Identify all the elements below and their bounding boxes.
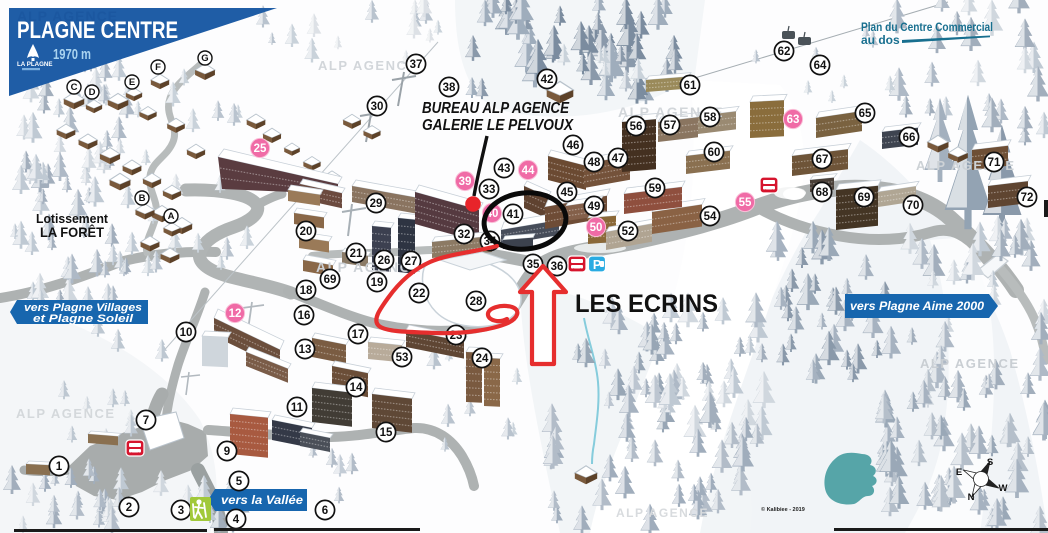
svg-text:W: W — [999, 483, 1008, 494]
svg-text:BUREAU ALP AGENCE: BUREAU ALP AGENCE — [422, 100, 570, 117]
svg-text:68: 68 — [816, 187, 829, 199]
svg-text:21: 21 — [350, 248, 363, 260]
svg-text:S: S — [987, 457, 993, 468]
svg-text:47: 47 — [612, 153, 625, 165]
svg-text:52: 52 — [622, 226, 635, 238]
svg-text:71: 71 — [988, 157, 1001, 169]
svg-text:69: 69 — [858, 192, 871, 204]
svg-text:43: 43 — [498, 163, 511, 175]
svg-text:E: E — [129, 77, 135, 88]
svg-text:LES ECRINS: LES ECRINS — [575, 290, 718, 318]
svg-text:N: N — [968, 492, 975, 503]
svg-text:41: 41 — [507, 209, 520, 221]
svg-text:61: 61 — [684, 80, 697, 92]
svg-text:4: 4 — [233, 514, 240, 526]
svg-text:© Kalibiee - 2019: © Kalibiee - 2019 — [761, 506, 805, 513]
svg-text:44: 44 — [522, 165, 535, 177]
svg-text:10: 10 — [180, 327, 193, 339]
svg-text:32: 32 — [458, 229, 471, 241]
svg-text:54: 54 — [704, 211, 717, 223]
svg-text:33: 33 — [483, 184, 496, 196]
svg-text:GALERIE LE PELVOUX: GALERIE LE PELVOUX — [422, 117, 574, 134]
svg-text:ALP AGENCE: ALP AGENCE — [16, 406, 116, 421]
svg-text:12: 12 — [229, 308, 242, 320]
svg-text:LA PLAGNE: LA PLAGNE — [17, 61, 53, 68]
svg-text:F: F — [155, 62, 161, 73]
svg-text:2: 2 — [126, 502, 132, 514]
svg-text:70: 70 — [907, 200, 920, 212]
svg-text:26: 26 — [378, 255, 391, 267]
svg-text:18: 18 — [300, 285, 313, 297]
svg-text:B: B — [139, 193, 146, 204]
svg-text:G: G — [201, 53, 208, 64]
svg-text:ALP AGENCE: ALP AGENCE — [318, 58, 418, 73]
svg-text:25: 25 — [254, 143, 267, 155]
svg-text:36: 36 — [551, 261, 564, 273]
svg-text:24: 24 — [476, 353, 489, 365]
svg-text:15: 15 — [380, 427, 393, 439]
svg-text:45: 45 — [561, 187, 574, 199]
svg-text:69: 69 — [324, 274, 337, 286]
svg-text:63: 63 — [787, 114, 800, 126]
svg-text:65: 65 — [859, 108, 872, 120]
svg-text:LA FORÊT: LA FORÊT — [40, 223, 104, 240]
svg-text:59: 59 — [649, 183, 662, 195]
svg-text:20: 20 — [300, 226, 313, 238]
svg-text:72: 72 — [1021, 192, 1034, 204]
svg-text:E: E — [956, 467, 962, 478]
svg-text:38: 38 — [443, 82, 456, 94]
svg-text:58: 58 — [704, 112, 717, 124]
svg-text:60: 60 — [708, 147, 721, 159]
svg-text:49: 49 — [588, 201, 601, 213]
svg-text:42: 42 — [541, 74, 554, 86]
svg-text:67: 67 — [816, 154, 829, 166]
svg-text:PLAGNE CENTRE: PLAGNE CENTRE — [17, 17, 178, 44]
svg-text:9: 9 — [224, 446, 230, 458]
svg-text:29: 29 — [370, 198, 383, 210]
svg-text:53: 53 — [396, 352, 409, 364]
svg-text:28: 28 — [470, 296, 483, 308]
svg-text:11: 11 — [291, 402, 304, 414]
svg-text:27: 27 — [405, 256, 418, 268]
svg-text:19: 19 — [371, 277, 384, 289]
svg-text:5: 5 — [236, 476, 243, 488]
svg-text:1: 1 — [56, 461, 63, 473]
svg-text:55: 55 — [739, 197, 752, 209]
svg-text:46: 46 — [567, 140, 580, 152]
svg-text:16: 16 — [298, 310, 311, 322]
svg-text:30: 30 — [371, 101, 384, 113]
svg-text:C: C — [71, 82, 78, 93]
svg-text:64: 64 — [814, 60, 827, 72]
svg-text:et Plagne Soleil: et Plagne Soleil — [33, 313, 134, 325]
svg-text:13: 13 — [299, 344, 312, 356]
svg-text:au dos: au dos — [861, 33, 900, 47]
svg-text:66: 66 — [903, 132, 916, 144]
svg-text:39: 39 — [459, 176, 472, 188]
svg-text:50: 50 — [590, 222, 603, 234]
svg-text:D: D — [89, 87, 96, 98]
svg-text:48: 48 — [588, 157, 601, 169]
svg-text:17: 17 — [352, 329, 365, 341]
svg-text:P: P — [593, 258, 601, 272]
svg-text:vers Plagne Aime 2000: vers Plagne Aime 2000 — [850, 299, 984, 313]
svg-text:57: 57 — [664, 120, 677, 132]
svg-text:62: 62 — [778, 46, 791, 58]
svg-text:Plan du Centre Commercial: Plan du Centre Commercial — [861, 20, 993, 34]
svg-text:ALP AGENCE: ALP AGENCE — [920, 356, 1020, 371]
svg-text:22: 22 — [413, 288, 426, 300]
svg-text:vers la Vallée: vers la Vallée — [221, 493, 303, 507]
svg-text:37: 37 — [410, 59, 423, 71]
svg-text:ALP AGENCE: ALP AGENCE — [616, 506, 709, 520]
svg-text:56: 56 — [630, 121, 643, 133]
svg-text:7: 7 — [143, 415, 149, 427]
svg-text:A: A — [168, 211, 175, 222]
svg-text:14: 14 — [350, 382, 363, 394]
svg-text:1970 m: 1970 m — [53, 46, 91, 63]
svg-text:3: 3 — [178, 505, 184, 517]
svg-text:6: 6 — [322, 505, 328, 517]
